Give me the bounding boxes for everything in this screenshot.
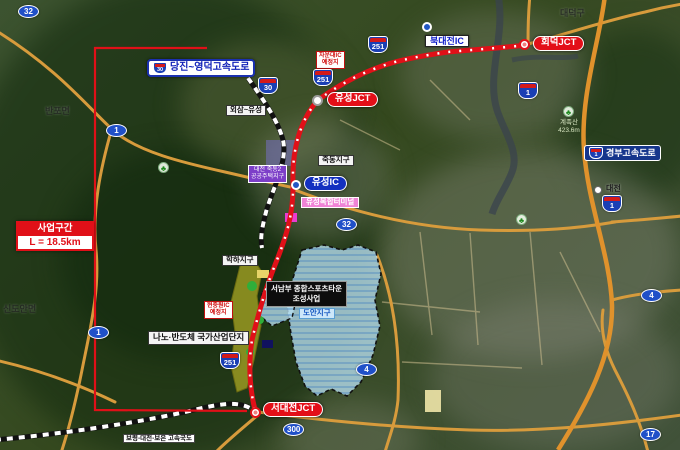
jaundae-ic-planned-label: 자운대IC 예정지: [316, 51, 345, 69]
expressway-route-shield-1: 1: [602, 195, 622, 212]
jaundae-ic-line1: 자운대IC: [319, 53, 342, 60]
yuseong-terminal-label: 유성복합터미널: [301, 197, 359, 208]
oesam-yuseong-label: 외삼~유성: [226, 105, 266, 116]
sindoan-myeon-label: 신도안면: [3, 304, 36, 314]
seodaejeon-jct-label: 서대전JCT: [263, 402, 323, 417]
project-summary-title: 사업구간: [18, 223, 92, 236]
gyeongbu-expressway-text: 경부고속도로: [606, 148, 656, 158]
tree-icon: ♣: [158, 162, 169, 173]
bukdaejeon-ic-label: 북대전IC: [425, 35, 469, 47]
daejeon-marker: [594, 186, 602, 194]
banpo-myeon-label: 반포면: [45, 106, 70, 116]
tree-icon: ♣: [563, 106, 574, 117]
mountain-name: 계족산: [548, 119, 590, 127]
river: [492, 0, 514, 214]
jukdong2-line2: 공공주택지구: [251, 174, 284, 181]
jaundae-ic-line2: 예정지: [319, 60, 342, 67]
highlighted-route: [250, 45, 527, 410]
yuseong-ic-label: 유성IC: [304, 176, 347, 191]
project-summary-box: 사업구간 L = 18.5km: [16, 221, 94, 251]
daejeon-place-label: 대전: [606, 184, 621, 193]
national-route-shield-4: 4: [641, 289, 662, 302]
hyeonchungwon-ic-line2: 예정지: [207, 310, 230, 317]
expressway-route-shield-1: 1: [518, 82, 538, 99]
route-30-mini-shield: 30: [153, 62, 167, 74]
gyeongbu-expressway-label: 1 경부고속도로: [584, 145, 661, 161]
route-1-mini-shield: 1: [589, 147, 603, 159]
daedeok-gu-label: 대덕구: [560, 8, 585, 18]
sports-town-line2: 조성사업: [271, 294, 342, 304]
national-route-shield-32: 32: [18, 5, 39, 18]
expressway-route-shield-30: 30: [258, 77, 278, 94]
national-route-shield-4: 4: [356, 363, 377, 376]
expressway-route-shield-251: 251: [368, 36, 388, 53]
bukdaejeon-ic-marker: [422, 22, 432, 32]
expressway-route-shield-251: 251: [220, 352, 240, 369]
satellite-map: ♣ ♣ ♣ 30 당진~영덕고속도로 1 경부고속도로 회덕JCT 북대전IC …: [0, 0, 680, 450]
tree-icon: ♣: [516, 214, 527, 225]
boryeong-corridor-label: 보령-대전-보은 고속국도: [123, 434, 195, 443]
dangjin-yeongdeok-expressway-label: 30 당진~영덕고속도로: [147, 59, 255, 77]
yuseong-jct-marker: [312, 95, 323, 106]
mountain-label: 계족산 423.6m: [548, 119, 590, 135]
nano-complex-label: 나노·반도체 국가산업단지: [148, 331, 249, 345]
seodaejeon-jct-marker: [250, 407, 261, 418]
dangjin-yeongdeok-expressway-text: 당진~영덕고속도로: [170, 62, 249, 74]
national-route-shield-1: 1: [88, 326, 109, 339]
national-route-shield-1: 1: [106, 124, 127, 137]
project-summary-length: L = 18.5km: [18, 236, 92, 250]
hoedeok-jct-marker: [519, 39, 530, 50]
hakha-district-label: 학하지구: [222, 255, 258, 266]
sports-town-project-label: 서남부 종합스포츠타운 조성사업: [266, 281, 347, 307]
yuseong-jct-label: 유성JCT: [327, 92, 378, 107]
jukdong-district-label: 죽동지구: [318, 155, 354, 166]
national-route-shield-17: 17: [640, 428, 661, 441]
jukdong2-housing-label: 대전 죽동2 공공주택지구: [248, 165, 287, 183]
jukdong2-line1: 대전 죽동2: [251, 167, 284, 174]
expressway-route-shield-251: 251: [313, 69, 333, 86]
mountain-elevation: 423.6m: [548, 127, 590, 135]
national-route-shield-32: 32: [336, 218, 357, 231]
hyeonchungwon-ic-line1: 현충원IC: [207, 303, 230, 310]
hyeonchungwon-ic-planned-label: 현충원IC 예정지: [204, 301, 233, 319]
yuseong-ic-marker: [291, 180, 301, 190]
river-branch: [512, 56, 578, 60]
hoedeok-jct-label: 회덕JCT: [533, 36, 584, 51]
sports-town-line1: 서남부 종합스포츠타운: [271, 284, 342, 294]
doan-district-label: 도안지구: [299, 308, 335, 319]
